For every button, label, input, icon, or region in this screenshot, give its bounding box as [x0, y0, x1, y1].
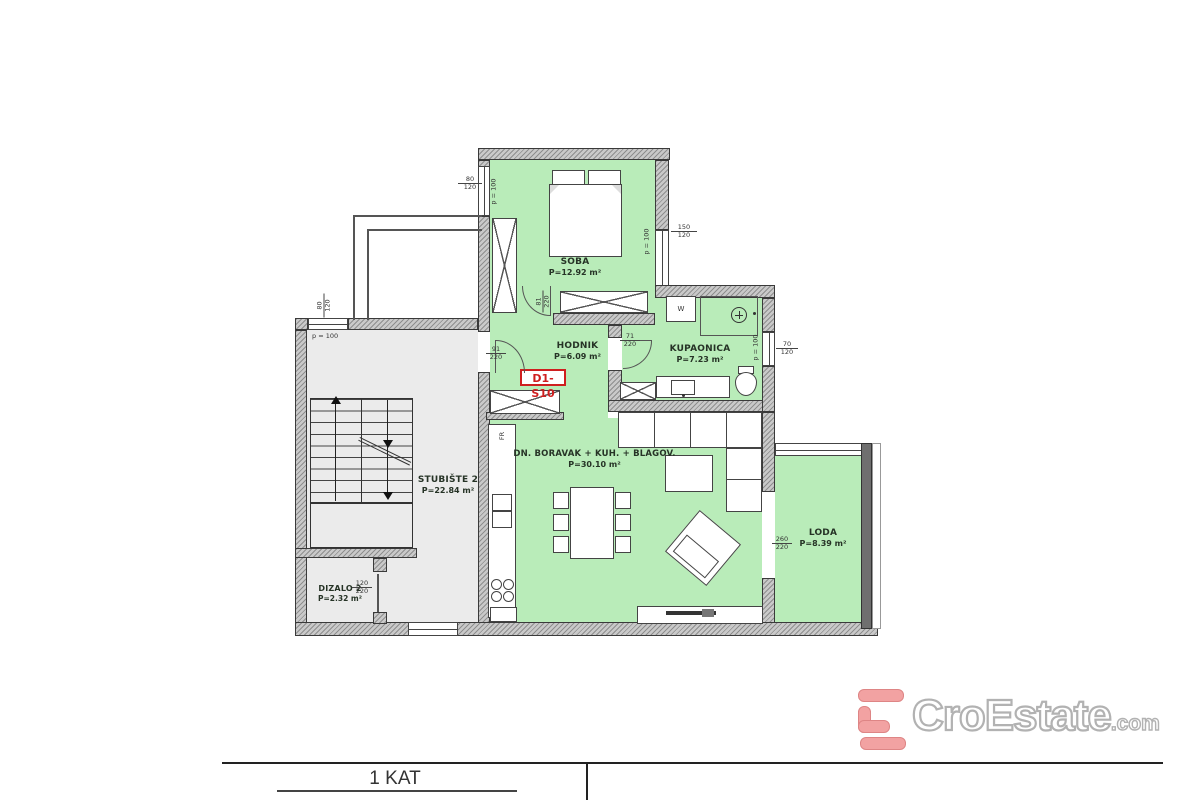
chair	[615, 536, 631, 553]
wall	[655, 160, 669, 230]
floor-title: 1 KAT	[295, 768, 495, 790]
chair	[553, 492, 569, 509]
stove-burner	[491, 591, 502, 602]
parapet-height-label: p = 100	[312, 333, 338, 340]
shower-drain-dot	[753, 312, 756, 315]
logo-bar	[858, 689, 904, 702]
kitchen-sink	[492, 494, 512, 511]
sofa-vertical	[726, 448, 762, 512]
wall	[373, 612, 387, 624]
wall	[553, 313, 655, 325]
sofa-cushion-line	[726, 479, 762, 480]
stove-burner	[491, 579, 502, 590]
sofa-cushion-line	[690, 412, 691, 448]
shower-head-icon	[731, 307, 747, 323]
room-label-stubiste: STUBIŠTE 2 P=22.84 m²	[393, 475, 503, 495]
bed	[549, 184, 622, 257]
window-soba-right	[655, 230, 669, 288]
terrace-outline-inner	[367, 229, 482, 320]
bed-fold	[550, 185, 559, 194]
dimension-label: 120220	[352, 580, 372, 595]
bath-cabinet	[620, 382, 656, 400]
room-label-loda: LODA P=8.39 m²	[783, 528, 863, 548]
chair	[553, 514, 569, 531]
loda-parapet	[775, 443, 863, 456]
wall	[762, 366, 775, 412]
dimension-label: 80120	[317, 294, 332, 318]
wall	[762, 412, 775, 492]
room-label-kupaonica: KUPAONICA P=7.23 m²	[645, 344, 755, 364]
unit-label: D1-S10	[520, 369, 566, 386]
under-counter-box	[490, 607, 517, 622]
sofa-cushion-line	[726, 412, 727, 448]
arrow-up-icon	[331, 396, 341, 404]
tv-box	[702, 609, 714, 617]
arrow-down-icon	[383, 492, 393, 500]
staircase-landing	[310, 503, 413, 548]
kitchen-sink	[492, 511, 512, 528]
wall	[608, 400, 775, 412]
floor-title-underline	[277, 790, 517, 792]
logo-bar	[858, 720, 890, 733]
washing-machine-label: W	[678, 305, 685, 313]
stove-burner	[503, 579, 514, 590]
sink	[671, 380, 695, 395]
tv-stand	[637, 606, 763, 624]
parapet-height-label: p = 100	[753, 332, 760, 364]
washing-machine: W	[666, 296, 696, 322]
dimension-label: 260220	[772, 536, 792, 551]
wardrobe	[560, 291, 648, 313]
arrow-down-icon	[383, 440, 393, 448]
title-block-hline	[222, 762, 1163, 764]
chair	[615, 492, 631, 509]
dizalo-door-leaf	[377, 574, 379, 612]
dining-table	[570, 487, 614, 559]
dimension-label: 80120	[458, 176, 482, 191]
wall	[295, 548, 417, 558]
floor-plan: D1-S10 W FR SOBA P=12.92 m	[0, 0, 1200, 800]
dimension-label: 150120	[671, 224, 697, 239]
window-soba-left	[478, 166, 490, 216]
parapet-height-label: p = 100	[491, 176, 498, 208]
parapet-height-label: p = 100	[644, 226, 651, 258]
wall	[295, 622, 878, 636]
fridge-label: FR	[498, 426, 506, 446]
wall	[295, 318, 308, 330]
dimension-label: 81220	[536, 291, 551, 313]
bed-fold	[612, 185, 621, 194]
faucet-dot	[682, 394, 685, 397]
dimension-label: 70120	[776, 341, 798, 356]
window-dizalo-lobby	[408, 622, 458, 636]
stove-burner	[503, 591, 514, 602]
staircase-divider	[361, 398, 362, 503]
title-block-vline	[586, 762, 588, 800]
loda-outer-edge	[872, 443, 881, 629]
window-kupaonica	[762, 332, 775, 366]
stair-down-line	[387, 400, 388, 496]
wall	[762, 578, 775, 625]
shower-area	[700, 296, 758, 336]
croestate-logo-icon	[856, 687, 906, 747]
chair	[615, 514, 631, 531]
stair-up-line	[335, 402, 336, 501]
wall	[478, 148, 670, 160]
dimension-label: 71220	[620, 333, 640, 348]
wall	[762, 298, 775, 332]
room-label-hodnik: HODNIK P=6.09 m²	[530, 341, 625, 361]
dimension-label: 91220	[486, 346, 506, 361]
room-label-boravak: DN. BORAVAK + KUH. + BLAGOV. P=30.10 m²	[502, 449, 687, 469]
croestate-logo-text: CroEstate.com	[912, 691, 1160, 741]
chair	[553, 536, 569, 553]
wall	[373, 558, 387, 572]
croestate-logo: CroEstate.com	[856, 687, 1176, 751]
sofa-cushion-line	[654, 412, 655, 448]
room-label-soba: SOBA P=12.92 m²	[510, 257, 640, 277]
window-stubiste	[308, 318, 348, 330]
logo-bar	[860, 737, 906, 750]
